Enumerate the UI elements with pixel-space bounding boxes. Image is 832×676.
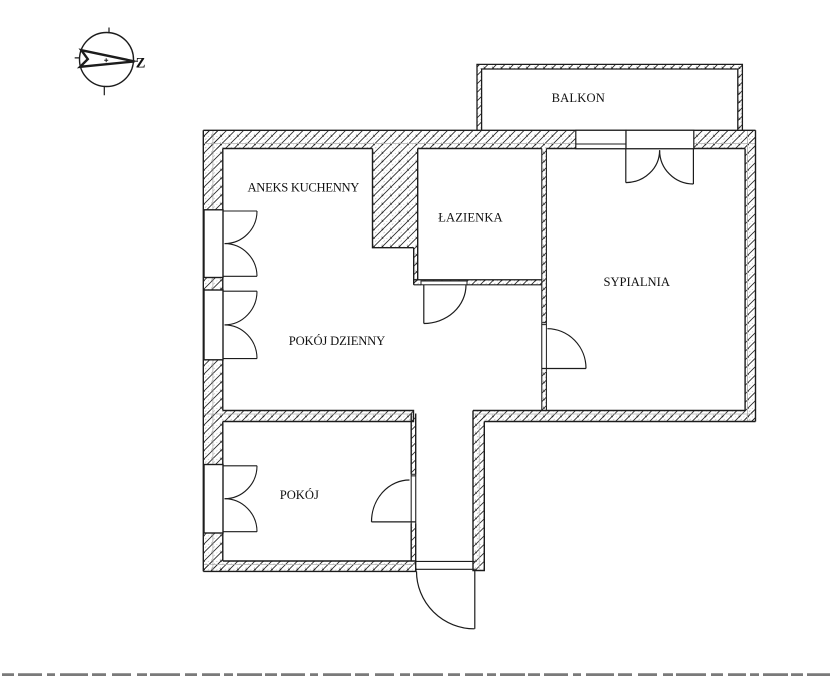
svg-text:SYPIALNIA: SYPIALNIA bbox=[603, 275, 669, 289]
svg-text:Z: Z bbox=[136, 55, 146, 71]
svg-text:POKÓJ: POKÓJ bbox=[280, 488, 319, 502]
svg-text:ŁAZIENKA: ŁAZIENKA bbox=[438, 211, 502, 225]
svg-text:ANEKS KUCHENNY: ANEKS KUCHENNY bbox=[248, 181, 360, 195]
svg-text:POKÓJ DZIENNY: POKÓJ DZIENNY bbox=[289, 334, 385, 348]
svg-text:BALKON: BALKON bbox=[552, 91, 605, 105]
